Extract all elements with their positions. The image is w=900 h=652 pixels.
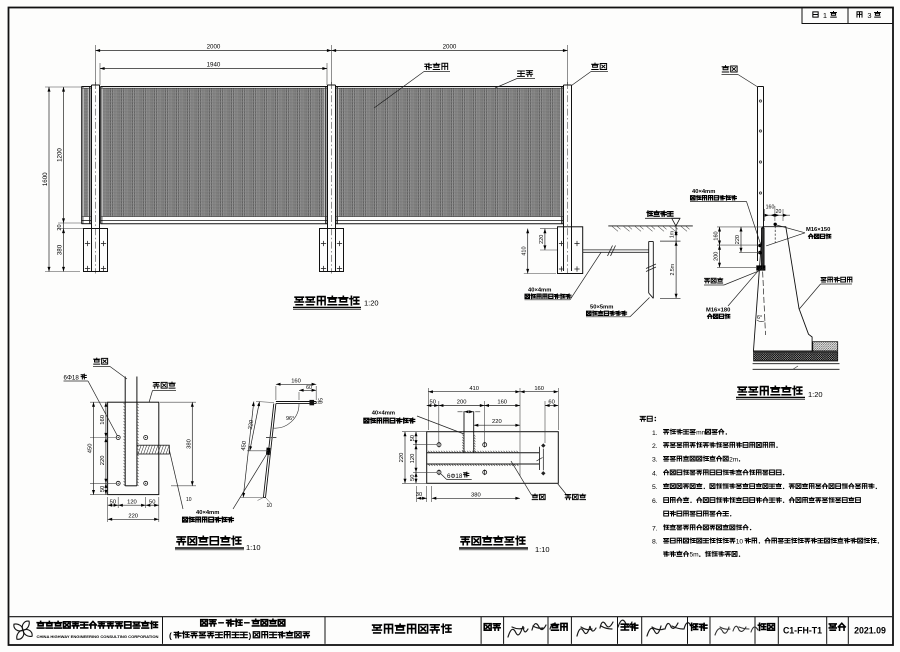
- svg-text:450: 450: [88, 444, 94, 454]
- svg-text:96°: 96°: [286, 416, 294, 422]
- svg-text:2.: 2.: [652, 443, 658, 450]
- svg-text:160: 160: [100, 415, 106, 425]
- svg-text:1: 1: [823, 11, 827, 20]
- svg-text:160: 160: [714, 231, 720, 240]
- svg-text:6Φ18: 6Φ18: [447, 473, 463, 480]
- svg-text:50: 50: [430, 400, 436, 406]
- svg-text:7.: 7.: [652, 525, 658, 532]
- svg-text:2000: 2000: [443, 44, 457, 51]
- svg-text:8.: 8.: [652, 539, 658, 546]
- svg-text:40×4mm: 40×4mm: [528, 288, 551, 294]
- svg-text:6Φ18: 6Φ18: [64, 375, 80, 382]
- svg-text:160: 160: [291, 379, 301, 385]
- svg-text:40×4mm: 40×4mm: [372, 411, 395, 417]
- svg-text:20: 20: [776, 209, 782, 215]
- svg-text:1940: 1940: [207, 62, 221, 69]
- svg-text:220: 220: [128, 514, 138, 520]
- svg-text:10: 10: [736, 538, 744, 545]
- svg-text:3.: 3.: [652, 457, 658, 464]
- svg-text:10: 10: [186, 497, 192, 503]
- svg-text:120: 120: [127, 499, 137, 505]
- svg-text:2.5m: 2.5m: [670, 264, 676, 276]
- svg-text:200: 200: [714, 252, 720, 261]
- svg-text:2m: 2m: [729, 456, 739, 463]
- svg-text:220: 220: [492, 419, 502, 425]
- svg-text:10: 10: [267, 503, 273, 509]
- svg-text:50: 50: [100, 486, 106, 492]
- svg-text:380: 380: [471, 493, 481, 499]
- svg-text:CHINA HIGHWAY ENGINEERING CONS: CHINA HIGHWAY ENGINEERING CONSULTING COR…: [37, 635, 159, 639]
- svg-text:3: 3: [867, 11, 871, 20]
- svg-text:160: 160: [766, 205, 775, 211]
- svg-text:50: 50: [149, 499, 155, 505]
- svg-text:120: 120: [410, 454, 416, 464]
- svg-text:160: 160: [534, 386, 544, 392]
- svg-text:410: 410: [469, 386, 479, 392]
- svg-text:50×5mm: 50×5mm: [590, 305, 613, 311]
- svg-text:160: 160: [497, 400, 507, 406]
- svg-text:6°: 6°: [757, 315, 762, 321]
- svg-text:1m: 1m: [670, 231, 676, 238]
- svg-text:60: 60: [306, 385, 312, 391]
- svg-text:2000: 2000: [207, 44, 221, 51]
- svg-text:220: 220: [100, 456, 106, 466]
- svg-text:1.: 1.: [652, 430, 658, 437]
- svg-text:5.: 5.: [652, 484, 658, 491]
- svg-text:20: 20: [57, 224, 63, 230]
- svg-text:1200: 1200: [57, 148, 64, 162]
- svg-text:1:10: 1:10: [246, 543, 261, 552]
- svg-text:4.: 4.: [652, 470, 658, 477]
- svg-text:50: 50: [110, 499, 116, 505]
- svg-text:35: 35: [319, 398, 325, 404]
- svg-text:60: 60: [548, 400, 554, 406]
- svg-text:M16×180: M16×180: [706, 308, 730, 314]
- svg-text:200: 200: [457, 400, 467, 406]
- svg-text:1600: 1600: [42, 172, 49, 186]
- svg-text:1:10: 1:10: [535, 545, 550, 554]
- svg-text:6.: 6.: [652, 498, 658, 505]
- svg-text:40×4mm: 40×4mm: [692, 189, 715, 195]
- svg-text:220: 220: [399, 453, 405, 463]
- svg-text:380: 380: [57, 244, 64, 255]
- svg-text:C1-FH-T1: C1-FH-T1: [783, 626, 822, 636]
- svg-text:M16×150: M16×150: [806, 227, 830, 233]
- svg-text:2021.09: 2021.09: [854, 626, 886, 636]
- svg-text:50: 50: [410, 435, 416, 441]
- svg-text:40×4mm: 40×4mm: [196, 510, 219, 516]
- svg-text:450: 450: [241, 441, 248, 451]
- svg-text:1:20: 1:20: [364, 299, 379, 308]
- svg-text:50: 50: [410, 475, 416, 481]
- svg-text:410: 410: [522, 246, 528, 255]
- svg-text:220: 220: [539, 235, 545, 244]
- svg-text:): ): [249, 631, 252, 641]
- svg-text:(: (: [169, 631, 172, 641]
- svg-text:5m: 5m: [689, 552, 699, 559]
- svg-text:1:20: 1:20: [808, 390, 823, 399]
- svg-text:30: 30: [416, 492, 422, 498]
- svg-text:220: 220: [735, 235, 741, 244]
- svg-text:380: 380: [186, 439, 192, 449]
